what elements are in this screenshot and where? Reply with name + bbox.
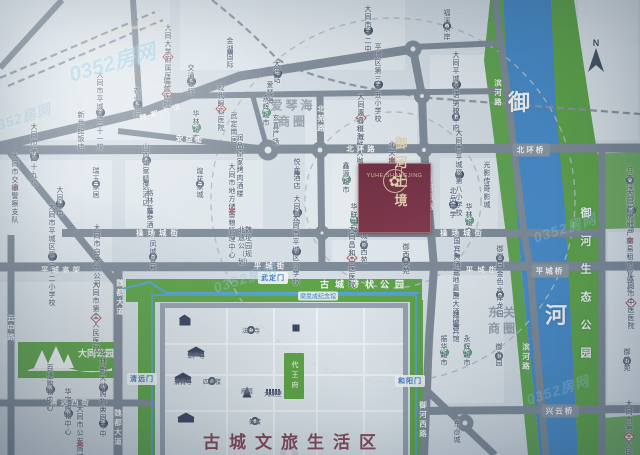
watermark-text: 0352房网: [211, 258, 279, 297]
watermark-layer: 0352房网0352房网0352房网0352房网: [0, 0, 640, 455]
watermark-text: 0352房网: [524, 370, 592, 409]
watermark-text: 0352房网: [0, 98, 54, 137]
location-map: 代王府法华寺华严寺清真寺四牌楼雁塔九龙壁鼓楼梁思成纪念馆 古城文旅生活区 大同公…: [0, 0, 640, 455]
watermark-text: 0352房网: [531, 208, 599, 247]
